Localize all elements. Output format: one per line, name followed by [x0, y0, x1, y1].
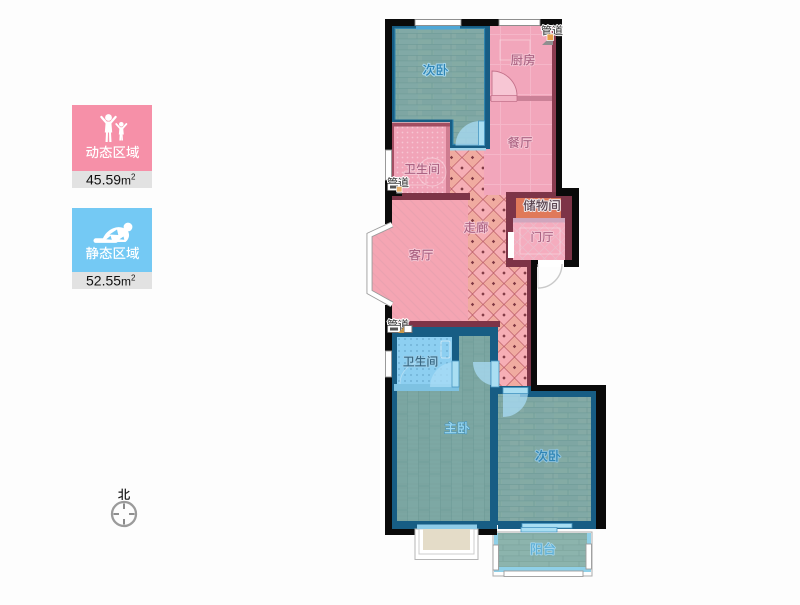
- svg-text:52.55m2: 52.55m2: [86, 273, 136, 289]
- svg-text:45.59m2: 45.59m2: [86, 172, 136, 188]
